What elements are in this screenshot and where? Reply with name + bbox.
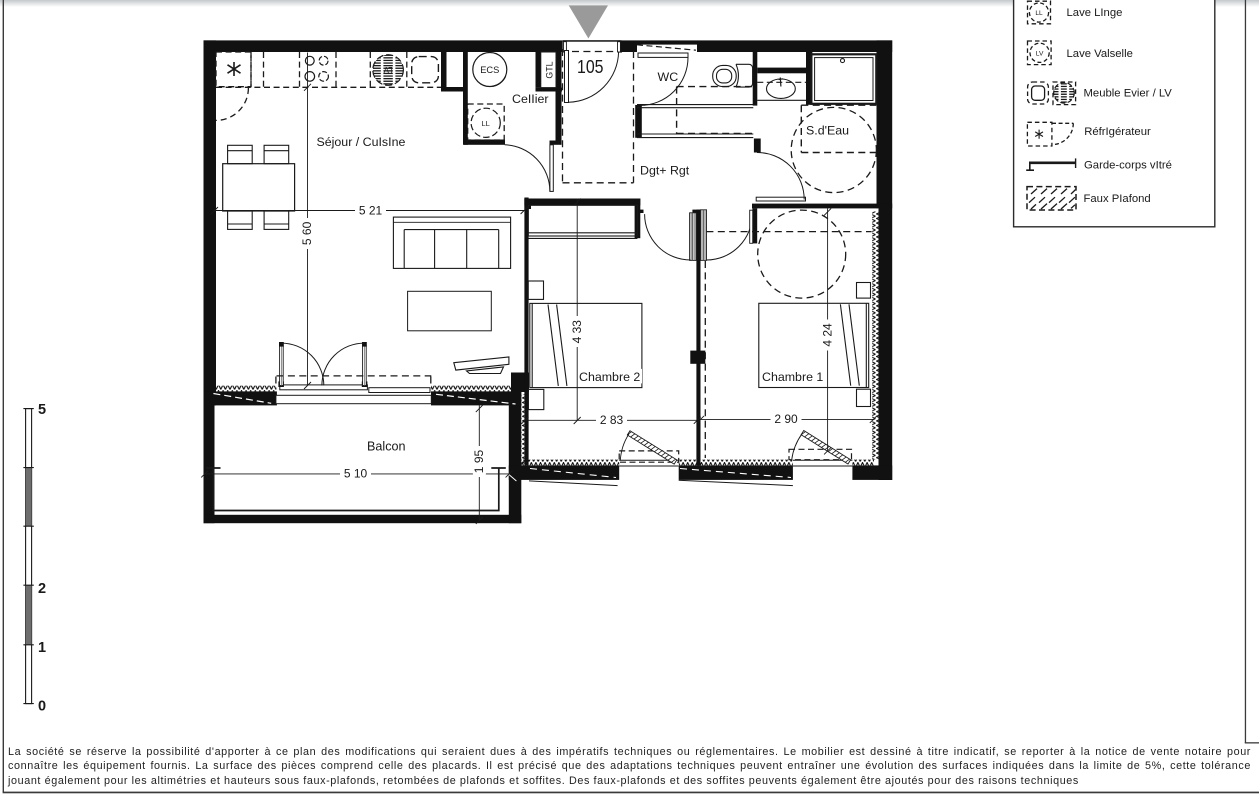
svg-text:Dgt+ Rgt: Dgt+ Rgt bbox=[640, 164, 690, 178]
svg-text:LL: LL bbox=[1035, 10, 1043, 17]
svg-text:LL: LL bbox=[482, 119, 490, 128]
svg-text:5 60: 5 60 bbox=[300, 221, 314, 245]
svg-text:Faux PIafond: Faux PIafond bbox=[1084, 193, 1151, 205]
svg-text:Lave LInge: Lave LInge bbox=[1067, 7, 1123, 19]
svg-text:5 21: 5 21 bbox=[359, 203, 383, 217]
svg-text:1 95: 1 95 bbox=[472, 449, 486, 473]
svg-text:LV: LV bbox=[383, 65, 393, 74]
svg-text:1: 1 bbox=[38, 640, 46, 656]
svg-text:Balcon: Balcon bbox=[367, 439, 406, 453]
svg-text:ECS: ECS bbox=[480, 65, 499, 75]
svg-text:0: 0 bbox=[38, 699, 46, 715]
svg-text:2 83: 2 83 bbox=[600, 413, 624, 427]
svg-text:105: 105 bbox=[577, 57, 604, 77]
svg-text:Garde-corps vItré: Garde-corps vItré bbox=[1084, 160, 1172, 172]
svg-text:WC: WC bbox=[658, 70, 679, 84]
svg-text:4 24: 4 24 bbox=[820, 323, 834, 347]
svg-text:Séjour / CuIsIne: Séjour / CuIsIne bbox=[317, 135, 406, 149]
svg-text:4 33: 4 33 bbox=[570, 320, 584, 344]
svg-text:Meuble Evier / LV: Meuble Evier / LV bbox=[1084, 88, 1173, 100]
svg-text:Lave Valselle: Lave Valselle bbox=[1067, 48, 1133, 60]
svg-text:S.d'Eau: S.d'Eau bbox=[806, 124, 849, 138]
svg-text:RéfrIgérateur: RéfrIgérateur bbox=[1084, 126, 1151, 138]
svg-text:2: 2 bbox=[38, 581, 46, 597]
svg-text:5: 5 bbox=[38, 402, 46, 418]
svg-text:GTL: GTL bbox=[545, 61, 555, 78]
svg-text:LV: LV bbox=[1036, 50, 1044, 57]
svg-text:5 10: 5 10 bbox=[344, 467, 368, 481]
svg-text:2 90: 2 90 bbox=[774, 412, 798, 426]
svg-text:Chambre 2: Chambre 2 bbox=[579, 370, 640, 384]
svg-text:CeIIier: CeIIier bbox=[512, 92, 549, 106]
svg-text:Chambre 1: Chambre 1 bbox=[762, 370, 823, 384]
